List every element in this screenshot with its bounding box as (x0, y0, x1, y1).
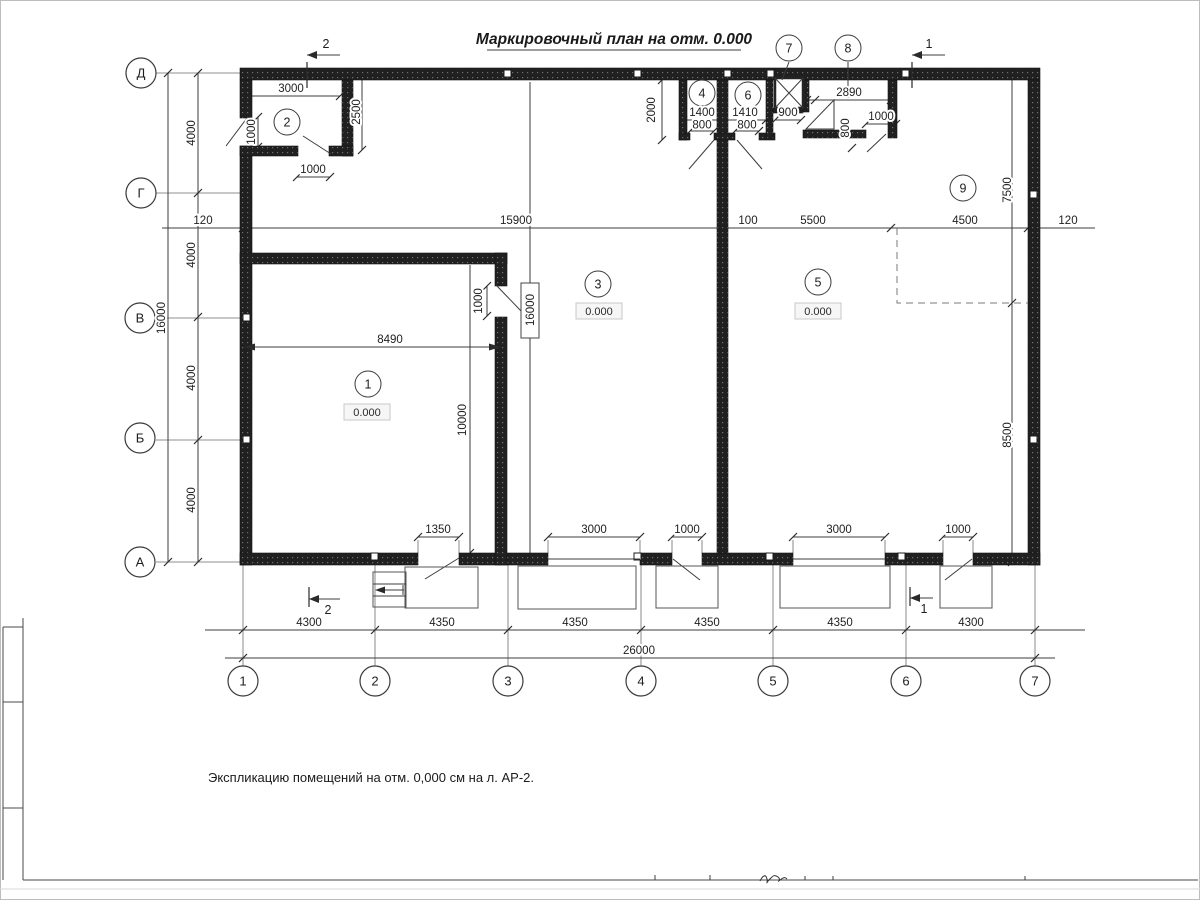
floor-plan-canvas: Маркировочный план на отм. 0.000 (0, 0, 1200, 900)
grid-col-label: 7 (1031, 674, 1038, 689)
sheet-note: Экспликацию помещений на отм. 0,000 см н… (208, 770, 534, 785)
wall-segment (702, 553, 793, 565)
wall-segment (1028, 80, 1040, 565)
column-bubbles: 1 2 3 4 5 6 7 (228, 666, 1050, 696)
porch (780, 566, 890, 608)
dim-label: 800 (737, 120, 756, 132)
dim-label: 120 (1058, 215, 1077, 227)
wall-segment (714, 133, 735, 140)
section-arrow-head (910, 594, 920, 602)
dim-label: 1000 (246, 119, 258, 145)
dim-label: 10000 (457, 404, 469, 436)
wall-segment (803, 130, 866, 138)
sheet-frame-lines (3, 618, 1198, 880)
section-arrow-head (307, 51, 317, 59)
door-swings (226, 118, 972, 580)
dim-label: 2000 (646, 97, 658, 123)
dim-label: 1000 (868, 111, 894, 123)
dim-label: 1000 (674, 524, 700, 536)
dim-label: 8490 (377, 334, 403, 346)
drawing-title: Маркировочный план на отм. 0.000 (476, 31, 753, 48)
dim-label: 16000 (525, 294, 537, 326)
elevation-value: 0.000 (804, 306, 832, 318)
dim-label: 4350 (429, 617, 455, 629)
room-number: 6 (745, 89, 752, 103)
room-number: 3 (595, 278, 602, 292)
dashed-boundary-line (897, 228, 1028, 303)
stair-arrow-line (384, 585, 404, 595)
wall-segment (329, 146, 353, 156)
wall-segment (240, 553, 418, 565)
grid-col-label: 3 (504, 674, 511, 689)
room-number: 8 (845, 42, 852, 56)
dim-label: 4350 (827, 617, 853, 629)
elevation-value: 0.000 (585, 306, 613, 318)
wall-segment (888, 80, 897, 138)
dim-label: 2890 (836, 87, 862, 99)
dim-label: 8500 (1002, 422, 1014, 448)
wall-pilaster (371, 553, 378, 560)
wall-pilaster (243, 314, 250, 321)
wall-segment (495, 253, 507, 286)
dim-label: 3000 (278, 83, 304, 95)
wall-pilaster (243, 436, 250, 443)
dim-label: 4000 (186, 242, 198, 268)
wall-segment (885, 553, 943, 565)
grid-col-label: 2 (371, 674, 378, 689)
dim-label: 1000 (300, 164, 326, 176)
wall-pilaster (902, 70, 909, 77)
grid-row-label: Г (137, 186, 144, 201)
dim-label: 16000 (156, 302, 168, 334)
grid-axis-lines (156, 73, 1035, 666)
dim-label: 4350 (694, 617, 720, 629)
wall-segment (679, 80, 687, 140)
dim-label: 26000 (623, 645, 655, 657)
drawing-sheet: Маркировочный план на отм. 0.000 (0, 0, 1200, 900)
room-number: 2 (284, 116, 291, 130)
wall-segment (679, 133, 690, 140)
dim-label: 5500 (800, 215, 826, 227)
signature-scribble (760, 876, 787, 883)
stair (373, 572, 406, 607)
room-number: 1 (365, 378, 372, 392)
dimension-lines (162, 73, 1095, 658)
ramp-symbol (806, 100, 834, 129)
dim-label: 4300 (296, 617, 322, 629)
section-label: 2 (323, 37, 330, 51)
dim-label: 100 (738, 215, 757, 227)
dim-label: 1000 (473, 288, 485, 314)
wall-segment (240, 146, 252, 565)
section-label: 1 (926, 37, 933, 51)
titleblock-ticks (655, 875, 1025, 880)
dim-label: 1350 (425, 524, 451, 536)
room-number: 4 (699, 87, 706, 101)
dim-label: 15900 (500, 215, 532, 227)
dim-label: 1400 (689, 107, 715, 119)
wall-segment (973, 553, 1040, 565)
grid-col-label: 5 (769, 674, 776, 689)
dim-label: 4000 (186, 365, 198, 391)
grid-row-label: А (136, 555, 145, 570)
dim-label: 120 (193, 215, 212, 227)
wall-pilaster (766, 553, 773, 560)
dim-label: 1410 (732, 107, 758, 119)
grid-row-label: В (136, 311, 145, 326)
grid-row-label: Б (136, 431, 145, 446)
porch (656, 566, 718, 608)
dim-label: 3000 (826, 524, 852, 536)
wall-segment (766, 80, 773, 138)
wall-pilaster (1030, 191, 1037, 198)
stair-arrow-head (375, 587, 385, 594)
walls (240, 68, 1040, 565)
dim-label: 800 (692, 120, 711, 132)
dim-label: 4000 (186, 487, 198, 513)
grid-col-label: 4 (637, 674, 644, 689)
wall-pilaster (634, 70, 641, 77)
wall-segment (640, 553, 672, 565)
elevation-value: 0.000 (353, 407, 381, 419)
porch (405, 567, 478, 608)
porches (405, 566, 992, 609)
dim-label: 800 (840, 118, 852, 137)
section-arrow-head (309, 595, 319, 603)
section-arrow-head (912, 51, 922, 59)
room-number: 7 (786, 42, 793, 56)
row-bubbles: Д Г В Б А (125, 58, 156, 577)
wall-pilaster (724, 70, 731, 77)
section-label: 2 (325, 603, 332, 617)
grid-col-label: 1 (239, 674, 246, 689)
wall-segment (240, 146, 298, 156)
dim-label: 1000 (945, 524, 971, 536)
room-number: 5 (815, 276, 822, 290)
dim-label: 4000 (186, 120, 198, 146)
wall-pilaster (767, 70, 774, 77)
dim-label: 2500 (351, 99, 363, 125)
dimension-ticks (164, 69, 1039, 662)
wall-segment (240, 80, 252, 118)
wall-segment (240, 253, 507, 264)
porch (940, 566, 992, 608)
dim-label: 4300 (958, 617, 984, 629)
dim-label: 4500 (952, 215, 978, 227)
grid-col-label: 6 (902, 674, 909, 689)
dim-label: 900 (778, 107, 797, 119)
wall-pilaster (898, 553, 905, 560)
section-label: 1 (921, 602, 928, 616)
room-number: 9 (960, 182, 967, 196)
elevation-marks: 0.000 0.000 0.000 (344, 303, 841, 420)
dim-label: 4350 (562, 617, 588, 629)
dim-label: 3000 (581, 524, 607, 536)
wall-pilaster (504, 70, 511, 77)
wall-segment (717, 80, 728, 553)
dim-label: 7500 (1002, 177, 1014, 203)
wall-segment (495, 317, 507, 565)
page-border (1, 1, 1200, 900)
porch (518, 566, 636, 609)
wall-pilaster (1030, 436, 1037, 443)
grid-row-label: Д (137, 66, 146, 81)
